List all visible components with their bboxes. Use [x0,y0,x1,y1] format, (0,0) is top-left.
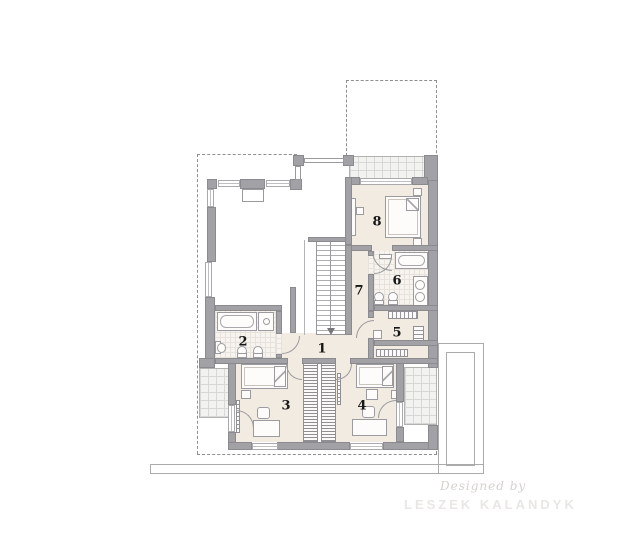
chimney-flue [242,189,264,202]
pillow-room4 [382,366,393,386]
chair-room3 [257,407,270,419]
window-room8-top [360,178,412,185]
balcony-right [404,367,437,425]
lower-storey-outline-strip [150,464,484,474]
pillar-beam-right [343,155,354,166]
wall-room8-top-b [412,177,428,185]
wall-bath6-wardrobe5 [374,305,438,311]
wall-right-upper [428,158,438,368]
floor-plan-canvas: 1 2 3 4 5 6 7 8 Designed by LESZEK KALAN… [0,0,638,556]
washbasin-bath6-1 [415,280,425,290]
room-label-4: 4 [357,399,366,414]
wall-bottom-a [228,442,252,450]
pillow-room8 [406,198,419,211]
room-label-5: 5 [392,326,401,341]
window-room3-bottom [252,443,278,450]
box-wardrobe5 [373,330,382,339]
chimney-block [240,179,265,189]
wall-stairs-top [308,237,346,242]
room-label-6: 6 [392,274,401,289]
wall-corridor-bottom-b [302,358,336,364]
desk-room4 [352,419,387,436]
wall-void-corridor [290,287,296,333]
wall-bath2-right-lower [276,354,282,358]
desk-room3 [253,420,280,437]
wall-room8-left [345,177,352,245]
roof-beam-vertical [295,166,301,180]
wall-corridor-bottom-c [350,358,438,364]
wall-stairs-hall [345,245,352,335]
lower-storey-outline-right-inner [446,352,475,466]
closet-strip-room3 [303,362,318,442]
roof-outline-left [197,154,198,454]
balcony-door-room4 [396,402,403,427]
cabinet-room8 [356,207,364,215]
wall-bath2-top [215,305,282,311]
wall-bath2-right-upper [276,311,282,334]
pillar-top-mid [290,179,302,190]
pillar-top-left [207,179,217,189]
wall-room3-left [228,360,236,405]
wall-right-lower [428,425,438,450]
window-void-left-2 [205,262,212,297]
roof-outline-top-right [346,80,437,81]
roof-outline-top-left [197,154,297,155]
roof-beam-top [304,158,344,163]
nightstand-room8-top [413,188,422,196]
shelves-wardrobe5-top [388,311,418,319]
watermark-designed-by: Designed by [440,479,526,493]
nightstand-room3 [241,390,251,399]
balcony-left-pier [199,358,215,368]
watermark-studio-name: LESZEK KALANDYK [404,497,577,512]
window-void-top-1 [218,180,240,187]
balcony-left [199,368,230,418]
washbasin-bath2 [217,343,226,353]
room-label-2: 2 [238,335,247,350]
wall-wardrobe5-bottom [374,340,438,346]
bathtub-bath6-basin [398,255,425,266]
pillar-beam-left [293,155,304,166]
wall-room4-right-lower [396,427,404,442]
room-label-8: 8 [372,215,381,230]
roof-outline-terrace-left [346,80,347,156]
washbasin-bath6-2 [415,292,425,302]
room-label-3: 3 [281,399,290,414]
stairwell-edge-line [304,240,305,335]
wall-void-left-lower [205,297,215,360]
roof-outline-bottom [197,454,437,455]
wall-corridor-bottom-a [215,358,288,364]
staircase-handrail [330,240,331,332]
wall-room4-right-upper [396,360,404,402]
room-label-7: 7 [354,284,363,299]
bathtub-bath2-basin [220,315,254,328]
wall-hall-wardrobe5-upper [368,311,374,318]
staircase [316,240,346,335]
window-void-top-2 [266,180,290,187]
pillow-room3 [274,366,286,387]
window-void-left-1 [207,189,214,207]
wall-bottom-b [277,442,350,450]
shelves-room4-niche [376,349,408,357]
window-room4-bottom [350,443,383,450]
staircase-direction-arrow [327,328,335,335]
wall-room8-hall-b [392,245,438,251]
cabinet-room4 [366,389,378,400]
room-label-1: 1 [317,342,326,357]
shower-bath2-drain [263,318,270,325]
hall7-floor [352,251,368,311]
closet-strip-room4 [321,362,336,442]
wall-void-left-upper [207,207,216,262]
balcony-door-room3 [228,405,235,432]
